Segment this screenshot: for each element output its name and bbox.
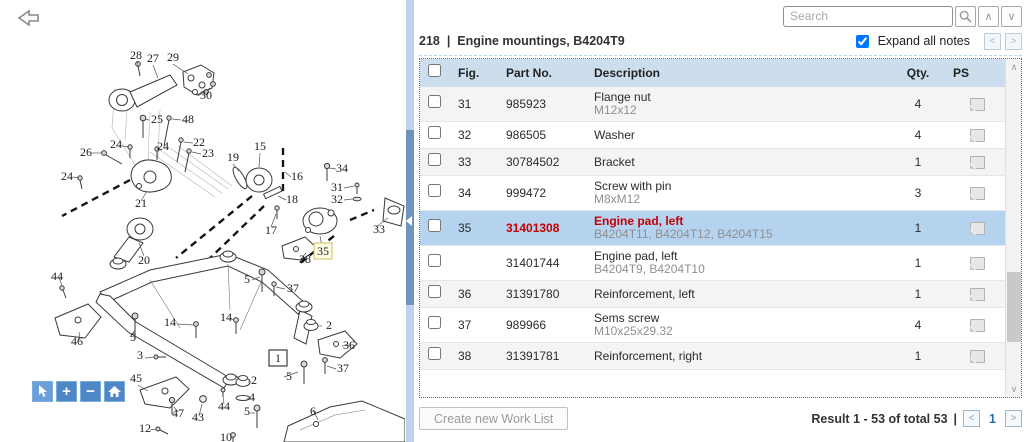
- diagram-label: 26: [80, 145, 92, 159]
- page-title: 218 | Engine mountings, B4204T9: [419, 34, 625, 48]
- select-all-checkbox[interactable]: [428, 64, 441, 77]
- qty-cell: 3: [887, 183, 949, 204]
- table-scrollbar[interactable]: ∧ ∨: [1005, 59, 1021, 397]
- diagram-label: 37: [287, 281, 299, 295]
- part-number-cell[interactable]: 31391781: [502, 346, 590, 367]
- description-cell: Reinforcement, left: [590, 284, 887, 305]
- description-cell: Screw with pin M8xM12: [590, 176, 887, 210]
- diagram-label: 27: [147, 51, 159, 65]
- description-cell: Engine pad, left B4204T11, B4204T12, B42…: [590, 211, 887, 245]
- diagram-label: 23: [202, 146, 214, 160]
- search-next-button[interactable]: ∨: [1001, 6, 1022, 27]
- note-icon[interactable]: [970, 350, 985, 363]
- diagram-label: 1: [275, 351, 281, 365]
- fig-cell: 36: [454, 284, 502, 305]
- scrollbar-thumb[interactable]: [1007, 272, 1021, 342]
- search-prev-button[interactable]: ∧: [978, 6, 999, 27]
- part-number-cell[interactable]: 985923: [502, 94, 590, 115]
- chevron-left-icon: <: [969, 413, 975, 424]
- table-row[interactable]: 31 985923 Flange nut M12x12 4: [420, 87, 1005, 122]
- row-checkbox[interactable]: [428, 184, 441, 197]
- qty-cell: 1: [887, 346, 949, 367]
- footer-pipe: |: [954, 412, 958, 426]
- panel-splitter[interactable]: [405, 0, 415, 442]
- diagram-label: 20: [138, 253, 150, 267]
- row-checkbox[interactable]: [428, 153, 441, 166]
- next-section-button[interactable]: >: [1005, 33, 1022, 50]
- fig-cell: 37: [454, 315, 502, 336]
- chevron-right-icon: >: [1011, 36, 1017, 47]
- zoom-out-button[interactable]: −: [80, 381, 101, 402]
- app-window: 2827293025482223242426242119151618173431…: [0, 0, 1024, 442]
- diagram-label: 37: [337, 361, 349, 375]
- table-body: 31 985923 Flange nut M12x12 4 32 986505 …: [420, 87, 1005, 370]
- row-checkbox[interactable]: [428, 95, 441, 108]
- zoom-in-button[interactable]: +: [56, 381, 77, 402]
- search-button[interactable]: [955, 6, 976, 27]
- col-header-ps: PS: [949, 66, 1005, 80]
- search-icon: [959, 10, 972, 23]
- pointer-icon: [37, 385, 48, 398]
- diagram-label: 12: [139, 421, 151, 435]
- next-page-button[interactable]: >: [1005, 410, 1022, 427]
- description-cell: Washer: [590, 125, 887, 146]
- search-row: ∧ ∨: [419, 4, 1022, 28]
- diagram-label: 28: [130, 48, 142, 62]
- table-row[interactable]: 32 986505 Washer 4: [420, 122, 1005, 149]
- diagram-label: 3: [137, 348, 143, 362]
- row-checkbox[interactable]: [428, 219, 441, 232]
- home-view-button[interactable]: [104, 381, 125, 402]
- diagram-label: 35: [317, 244, 329, 258]
- description-cell: Bracket: [590, 152, 887, 173]
- note-icon[interactable]: [970, 187, 985, 200]
- part-number-cell[interactable]: 999472: [502, 183, 590, 204]
- diagram-label: 14: [220, 310, 232, 324]
- fig-cell: 33: [454, 152, 502, 173]
- current-page-number[interactable]: 1: [986, 412, 999, 426]
- result-count-text: Result 1 - 53 of total 53: [811, 412, 947, 426]
- note-icon[interactable]: [970, 319, 985, 332]
- table-row[interactable]: 33 30784502 Bracket 1: [420, 149, 1005, 176]
- col-header-desc: Description: [590, 66, 887, 80]
- qty-cell: 1: [887, 218, 949, 239]
- scroll-down-icon[interactable]: ∨: [1006, 381, 1022, 397]
- section-header-row: 218 | Engine mountings, B4204T9 Expand a…: [419, 30, 1022, 52]
- scroll-up-icon[interactable]: ∧: [1006, 59, 1022, 75]
- row-checkbox[interactable]: [428, 254, 441, 267]
- row-checkbox[interactable]: [428, 347, 441, 360]
- expand-all-notes-label: Expand all notes: [878, 34, 970, 48]
- prev-page-button[interactable]: <: [963, 410, 980, 427]
- part-number-cell[interactable]: 986505: [502, 125, 590, 146]
- diagram-label: 17: [265, 223, 277, 237]
- fig-cell: 34: [454, 183, 502, 204]
- diagram-label: 14: [164, 315, 176, 329]
- row-checkbox[interactable]: [428, 126, 441, 139]
- qty-cell: 4: [887, 94, 949, 115]
- diagram-label: 25: [151, 112, 163, 126]
- pointer-tool-button[interactable]: [32, 381, 53, 402]
- diagram-label: 38: [299, 252, 311, 266]
- table-row[interactable]: 34 999472 Screw with pin M8xM12 3: [420, 176, 1005, 211]
- prev-section-button[interactable]: <: [984, 33, 1001, 50]
- note-icon[interactable]: [970, 156, 985, 169]
- diagram-label: 24: [61, 169, 73, 183]
- diagram-label: 6: [310, 404, 316, 418]
- diagram-label: 45: [130, 371, 142, 385]
- diagram-label: 15: [254, 139, 266, 153]
- qty-cell: 1: [887, 253, 949, 274]
- table-row[interactable]: 36 31391780 Reinforcement, left 1: [420, 281, 1005, 308]
- chevron-left-icon: <: [990, 36, 996, 47]
- diagram-label: 19: [227, 150, 239, 164]
- note-icon[interactable]: [970, 98, 985, 111]
- col-header-part: Part No.: [502, 66, 590, 80]
- collapse-left-icon: [406, 216, 412, 226]
- description-cell: Sems screw M10x25x29.32: [590, 308, 887, 342]
- diagram-label: 5: [130, 330, 136, 344]
- diagram-label: 5: [244, 272, 250, 286]
- header-divider: [419, 55, 1022, 56]
- diagram-label: 48: [182, 112, 194, 126]
- fig-cell: [454, 259, 502, 267]
- diagram-label: 44: [218, 399, 230, 413]
- diagram-label: 24: [157, 139, 169, 153]
- table-row[interactable]: 38 31391781 Reinforcement, right 1: [420, 343, 1005, 370]
- diagram-label: 47: [172, 406, 184, 420]
- chevron-down-icon: ∨: [1007, 10, 1015, 23]
- diagram-label: 30: [200, 88, 212, 102]
- chevron-right-icon: >: [1011, 413, 1017, 424]
- description-cell: Flange nut M12x12: [590, 87, 887, 121]
- diagram-label: 24: [110, 137, 122, 151]
- row-checkbox[interactable]: [428, 285, 441, 298]
- part-number-cell[interactable]: 31401744: [502, 253, 590, 274]
- diagram-label: 5: [286, 369, 292, 383]
- expand-all-notes-checkbox[interactable]: [856, 35, 869, 48]
- table-row[interactable]: 37 989966 Sems screw M10x25x29.32 4: [420, 308, 1005, 343]
- qty-cell: 1: [887, 152, 949, 173]
- qty-cell: 1: [887, 284, 949, 305]
- fig-cell: 31: [454, 94, 502, 115]
- diagram-label: 5: [244, 404, 250, 418]
- part-number-cell[interactable]: 989966: [502, 315, 590, 336]
- minus-icon: −: [86, 382, 95, 401]
- table-header-row: Fig. Part No. Description Qty. PS: [420, 59, 1005, 87]
- qty-cell: 4: [887, 125, 949, 146]
- part-number-cell[interactable]: 31401308: [502, 218, 590, 239]
- fig-cell: 38: [454, 346, 502, 367]
- diagram-panel: 2827293025482223242426242119151618173431…: [0, 0, 405, 442]
- diagram-label: 10: [220, 430, 232, 442]
- description-cell: Engine pad, left B4204T9, B4204T10: [590, 246, 887, 280]
- note-icon[interactable]: [970, 288, 985, 301]
- create-worklist-button[interactable]: Create new Work List: [419, 407, 568, 430]
- qty-cell: 4: [887, 315, 949, 336]
- col-header-qty: Qty.: [887, 66, 949, 80]
- diagram-label: 2: [251, 373, 257, 387]
- parts-list-panel: ∧ ∨ 218 | Engine mountings, B4204T9 Expa…: [415, 0, 1024, 442]
- diagram-label: 29: [167, 50, 179, 64]
- note-icon[interactable]: [970, 129, 985, 142]
- diagram-label: 4: [249, 390, 255, 404]
- diagram-label: 18: [286, 192, 298, 206]
- search-input[interactable]: [783, 6, 953, 27]
- diagram-zoom-toolbar: + −: [32, 381, 125, 402]
- parts-diagram[interactable]: 2827293025482223242426242119151618173431…: [0, 0, 405, 442]
- footer-row: Create new Work List Result 1 - 53 of to…: [419, 407, 1022, 430]
- diagram-label: 36: [343, 338, 355, 352]
- diagram-label: 32: [331, 192, 343, 206]
- diagram-label: 46: [71, 334, 83, 348]
- row-checkbox[interactable]: [428, 316, 441, 329]
- table-row[interactable]: 31401744 Engine pad, left B4204T9, B4204…: [420, 246, 1005, 281]
- note-icon[interactable]: [970, 222, 985, 235]
- plus-icon: +: [62, 382, 71, 401]
- diagram-label: 16: [291, 169, 303, 183]
- diagram-label: 34: [336, 161, 348, 175]
- chevron-up-icon: ∧: [984, 10, 992, 23]
- fig-cell: 35: [454, 218, 502, 239]
- fig-cell: 32: [454, 125, 502, 146]
- diagram-label: 43: [192, 410, 204, 424]
- col-header-fig: Fig.: [454, 66, 502, 80]
- diagram-label: 2: [326, 318, 332, 332]
- diagram-label: 21: [135, 196, 147, 210]
- note-icon[interactable]: [970, 257, 985, 270]
- description-cell: Reinforcement, right: [590, 346, 887, 367]
- part-number-cell[interactable]: 31391780: [502, 284, 590, 305]
- table-row[interactable]: 35 31401308 Engine pad, left B4204T11, B…: [420, 211, 1005, 246]
- diagram-label: 44: [51, 269, 63, 283]
- home-icon: [108, 386, 121, 398]
- part-number-cell[interactable]: 30784502: [502, 152, 590, 173]
- parts-table: Fig. Part No. Description Qty. PS 31 985…: [419, 58, 1022, 398]
- diagram-label: 33: [373, 222, 385, 236]
